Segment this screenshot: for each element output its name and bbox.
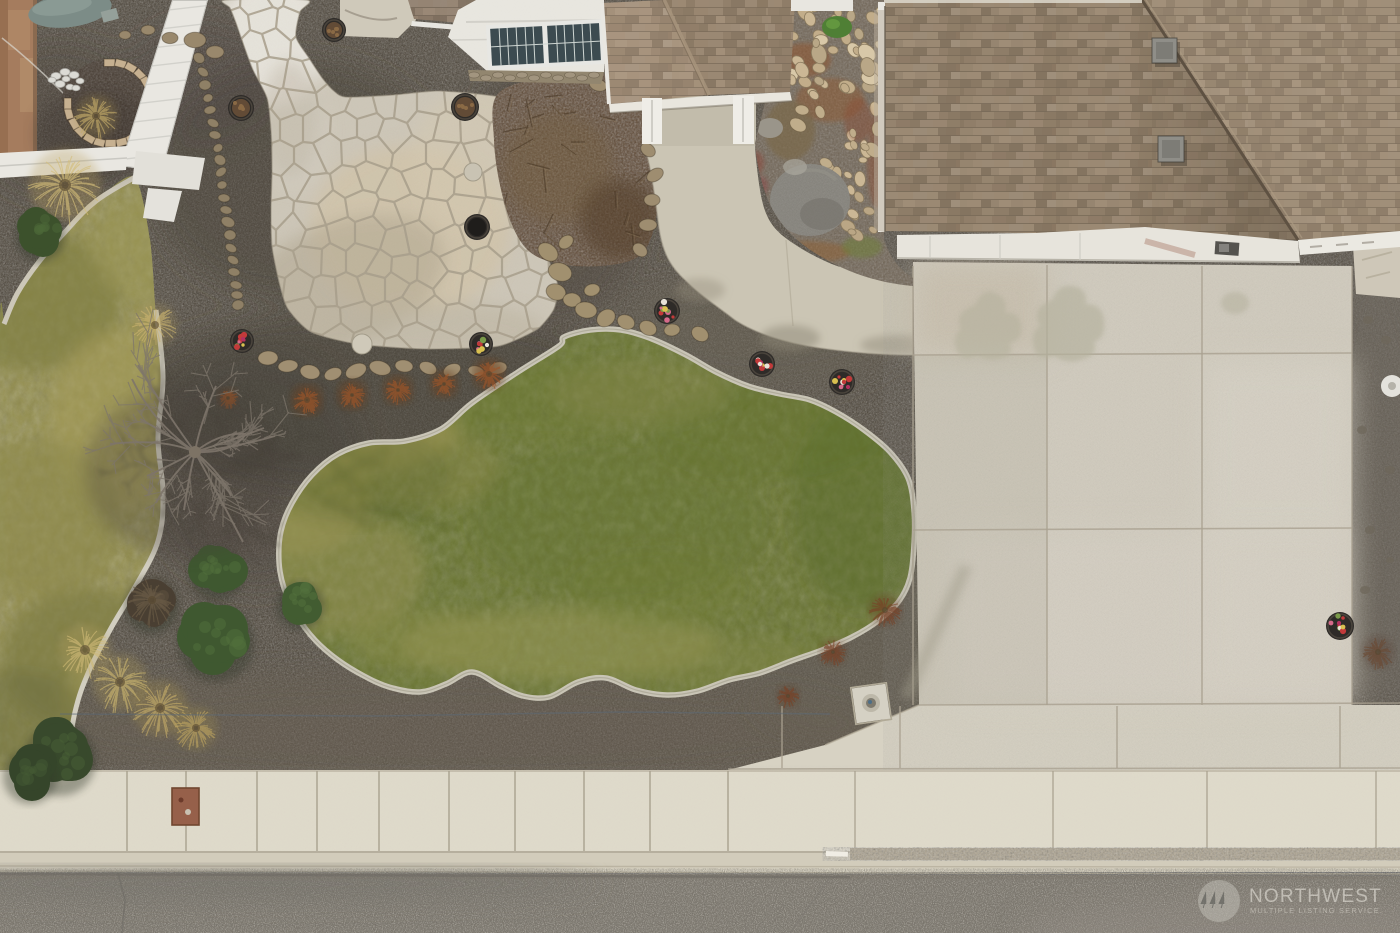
svg-text:MULTIPLE LISTING SERVICE.: MULTIPLE LISTING SERVICE. <box>1250 906 1383 915</box>
svg-text:NORTHWEST: NORTHWEST <box>1249 886 1382 907</box>
